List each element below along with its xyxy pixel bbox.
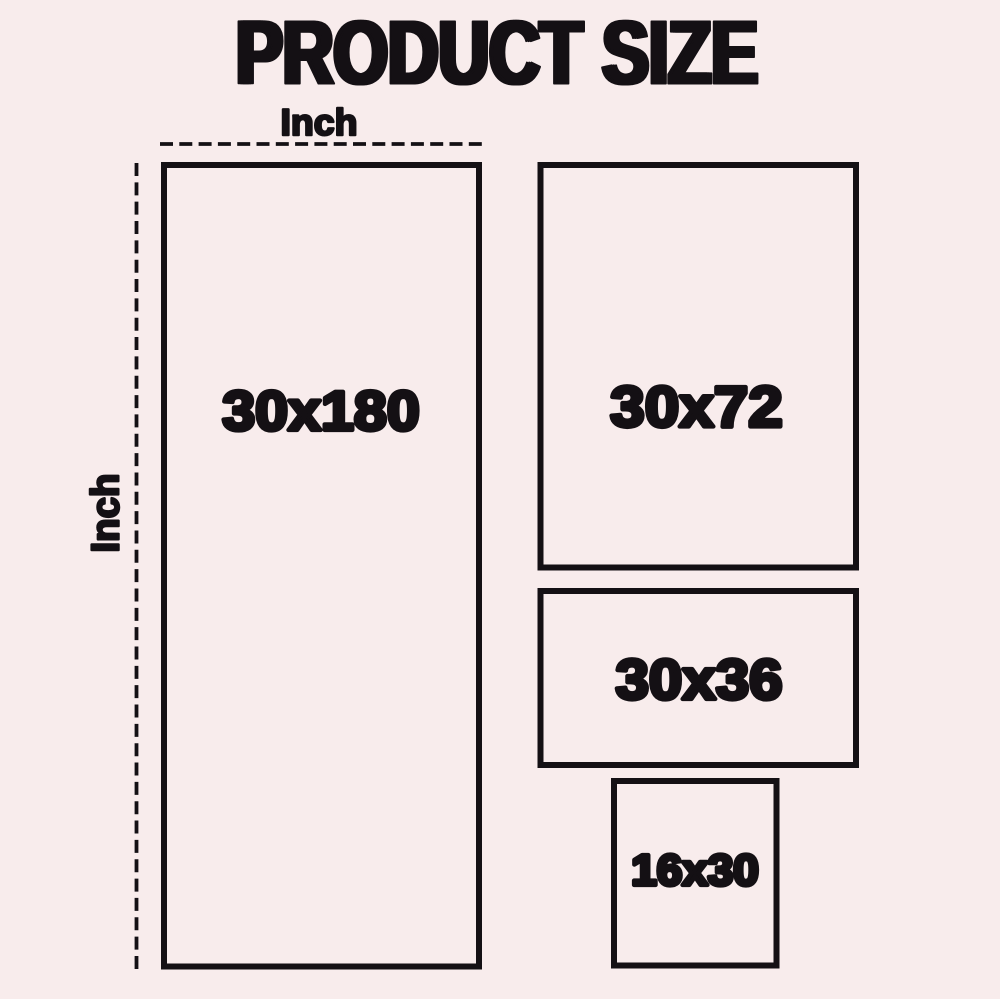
svg-text:PRODUCT SIZE: PRODUCT SIZE — [238, 3, 760, 103]
svg-text:Inch: Inch — [280, 101, 357, 143]
svg-text:30x36: 30x36 — [615, 649, 782, 712]
svg-text:Inch: Inch — [85, 473, 128, 552]
svg-text:30x180: 30x180 — [222, 380, 419, 442]
svg-text:16x30: 16x30 — [631, 845, 759, 895]
svg-text:30x72: 30x72 — [610, 375, 783, 439]
